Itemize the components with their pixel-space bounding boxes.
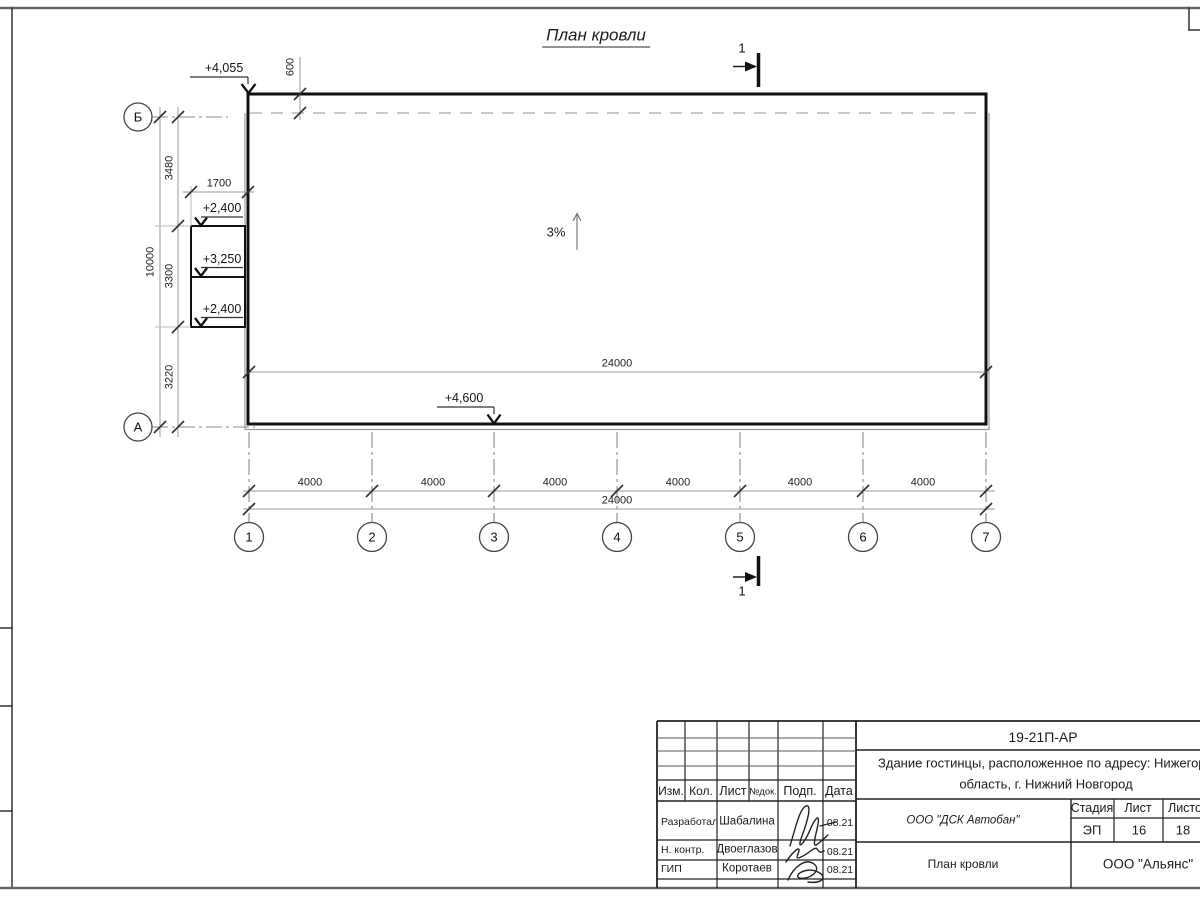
dim-bay-2: 4000 [421, 478, 445, 489]
axis-bubble-4: 4 [613, 531, 620, 544]
stamp-object-line1: Здание гостинцы, расположенное по адресу… [878, 757, 1200, 770]
stamp-stage-value: ЭП [1083, 824, 1102, 837]
axis-bubble-A: А [134, 421, 143, 434]
roof-outline [248, 94, 986, 424]
axis-bubble-5: 5 [736, 531, 743, 544]
drawing-sheet: План кровли +4,055 600 +2,400 +3,250 +2,… [0, 0, 1200, 900]
slope-arrow [573, 214, 581, 251]
stamp-sheets-value: 18 [1176, 824, 1190, 837]
roof-plan-outline [191, 94, 989, 430]
elevation-arrow [488, 415, 501, 424]
dim-left-total: 10000 [146, 247, 157, 278]
elevation-label-annex-bot: +2,400 [203, 303, 242, 316]
stamp-sheet-value: 16 [1132, 824, 1146, 837]
stamp-sheet-label: Лист [1124, 802, 1151, 815]
elevation-arrow [195, 268, 207, 276]
stamp-role-nkontr: Н. контр. [661, 845, 704, 856]
stamp-sheet-title: План кровли [928, 858, 999, 870]
axis-bubble-2: 2 [368, 531, 375, 544]
stamp-header-kol: Кол. [689, 785, 713, 797]
dim-bay-3: 4000 [543, 478, 567, 489]
dim-seg-top: 3480 [165, 156, 176, 180]
dim-seg-bot: 3220 [165, 365, 176, 389]
dim-bottom-total: 24000 [602, 496, 633, 507]
section-label-top: 1 [738, 42, 745, 55]
dimension-lines [155, 57, 995, 509]
dim-inner-total: 24000 [602, 359, 633, 370]
stamp-name-shabalina: Шабалина [719, 816, 775, 828]
stamp-name-korotaev: Коротаев [722, 863, 772, 875]
stamp-date-2: 08.21 [827, 847, 853, 858]
stamp-doc-number: 19-21П-АР [1008, 730, 1077, 744]
elevation-label-entry: +4,600 [445, 392, 484, 405]
elevation-label-annex-mid: +3,250 [203, 253, 242, 266]
dim-overhang: 600 [286, 58, 297, 76]
stamp-header-podp: Подп. [783, 785, 816, 798]
dim-bay-6: 4000 [911, 478, 935, 489]
dim-bay-5: 4000 [788, 478, 812, 489]
dim-bay-1: 4000 [298, 478, 322, 489]
stamp-stage-label: Стадия [1071, 802, 1114, 815]
axis-bubble-1: 1 [245, 531, 252, 544]
stamp-date-3: 08.21 [827, 865, 853, 876]
stamp-name-dvoeglazov: Двоеглазов [716, 844, 777, 856]
elevation-arrow [195, 218, 207, 226]
stamp-sheets-label: Листов [1168, 802, 1200, 815]
dim-annex-width: 1700 [207, 179, 231, 190]
axis-bubble-7: 7 [982, 531, 989, 544]
stamp-header-ndoc: №док. [749, 787, 777, 797]
dim-seg-mid: 3300 [165, 264, 176, 288]
stamp-object-line2: область, г. Нижний Новгород [959, 778, 1132, 791]
axis-bubble-6: 6 [859, 531, 866, 544]
axis-grid-lines [152, 117, 986, 523]
stamp-role-gip: ГИП [661, 864, 682, 875]
stamp-firm: ООО "Альянс" [1103, 857, 1193, 871]
dimension-ticks [154, 88, 992, 515]
stamp-header-list: Лист [719, 785, 746, 798]
stamp-header-data: Дата [825, 785, 853, 798]
axis-bubble-3: 3 [490, 531, 497, 544]
section-mark-top [733, 53, 759, 87]
axis-bubble-B: Б [134, 111, 143, 124]
elevation-label-annex-top: +2,400 [203, 202, 242, 215]
elevation-arrow [195, 318, 207, 326]
stamp-date-1: 08.21 [827, 818, 853, 829]
stamp-role-razrabotal: Разработал [661, 817, 718, 828]
drawing-title: План кровли [542, 27, 650, 48]
slope-label: 3% [547, 226, 566, 239]
elevation-label-roof: +4,055 [205, 62, 244, 75]
dim-bay-4: 4000 [666, 478, 690, 489]
section-label-bottom: 1 [738, 585, 745, 598]
stamp-header-izm: Изм. [658, 785, 684, 797]
section-mark-bottom [733, 556, 759, 586]
stamp-company: ООО "ДСК Автобан" [906, 815, 1019, 827]
elevation-arrow [242, 84, 256, 93]
